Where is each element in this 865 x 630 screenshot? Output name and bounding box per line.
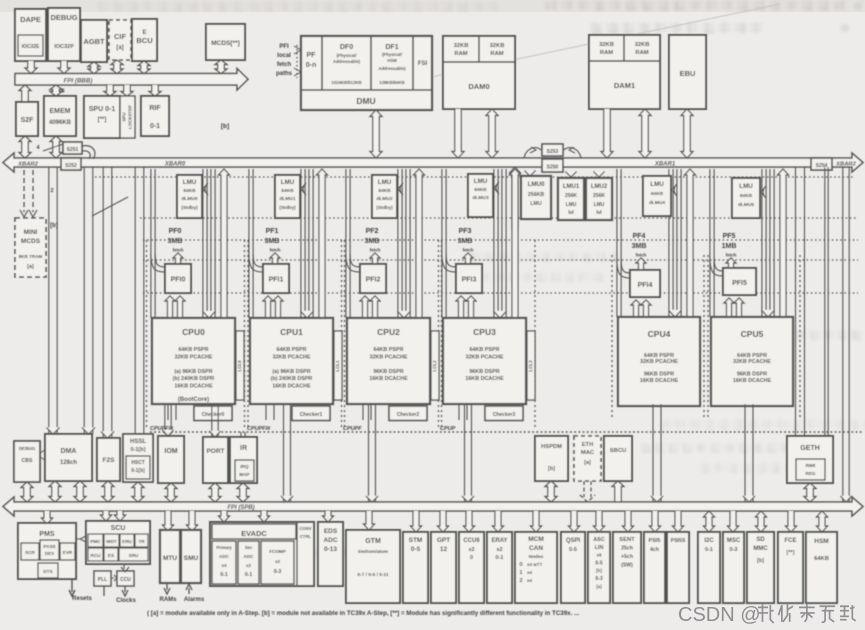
svg-text:local: local	[277, 53, 291, 59]
svg-text:64KB: 64KB	[378, 188, 391, 194]
svg-text:DEV: DEV	[45, 551, 55, 556]
svg-text:BCU: BCU	[136, 36, 152, 45]
svg-text:F2S: F2S	[103, 457, 116, 464]
svg-text:IR: IR	[240, 445, 247, 452]
svg-text:16KB DCACHE: 16KB DCACHE	[640, 378, 679, 384]
svg-text:64KB PSPR: 64KB PSPR	[470, 347, 500, 353]
svg-text:x2: x2	[246, 563, 252, 568]
svg-text:EMEM: EMEM	[50, 108, 71, 115]
svg-text:S252: S252	[65, 163, 77, 169]
svg-text:(Physical/: (Physical/	[382, 52, 403, 57]
svg-text:PF4: PF4	[633, 233, 646, 240]
svg-text:RAM: RAM	[490, 51, 503, 57]
svg-text:(BootCore): (BootCore)	[178, 397, 209, 403]
svg-text:12: 12	[440, 546, 448, 553]
svg-text:Checker2: Checker2	[397, 412, 420, 418]
svg-text:fetch: fetch	[636, 253, 647, 258]
svg-text:[b]: [b]	[50, 223, 58, 229]
svg-text:ERAY: ERAY	[491, 538, 507, 544]
svg-text:32KB PCACHE: 32KB PCACHE	[733, 359, 771, 365]
svg-text:Alarms: Alarms	[184, 597, 205, 603]
svg-text:SPU: SPU	[122, 112, 127, 121]
svg-text:2: 2	[50, 188, 53, 194]
svg-text:16KB DCACHE: 16KB DCACHE	[733, 378, 772, 384]
svg-text:16KB DCACHE: 16KB DCACHE	[465, 376, 504, 382]
svg-text:LMU1: LMU1	[563, 184, 580, 190]
svg-text:1MB: 1MB	[722, 243, 737, 250]
svg-text:0-1: 0-1	[220, 572, 228, 578]
svg-text:CIF: CIF	[114, 32, 127, 41]
svg-text:LMU: LMU	[566, 202, 577, 208]
svg-text:x2: x2	[468, 547, 474, 553]
svg-text:CBS: CBS	[22, 458, 33, 464]
svg-text:LMU: LMU	[281, 179, 295, 186]
svg-text:MINI: MINI	[24, 229, 38, 236]
svg-text:32KB PCACHE: 32KB PCACHE	[369, 354, 407, 360]
svg-text:LMU: LMU	[739, 183, 753, 190]
svg-text:LMU: LMU	[378, 179, 392, 186]
svg-text:3MB: 3MB	[458, 238, 473, 245]
svg-text:Addressable): Addressable)	[378, 66, 406, 71]
svg-text:MCDS[**]: MCDS[**]	[211, 40, 240, 47]
svg-text:EDS: EDS	[324, 528, 338, 535]
svg-text:Clocks: Clocks	[116, 598, 136, 604]
svg-text:FPI (BBB): FPI (BBB)	[64, 78, 93, 85]
svg-text:32KB: 32KB	[599, 42, 614, 48]
svg-text:PFI4: PFI4	[638, 282, 653, 289]
svg-text:SCU: SCU	[111, 525, 126, 532]
svg-text:XBAR2: XBAR2	[835, 162, 856, 168]
svg-text:1024KB/512KB: 1024KB/512KB	[331, 80, 361, 85]
svg-text:IOM: IOM	[164, 448, 177, 455]
svg-text:0-13: 0-13	[324, 546, 337, 553]
svg-text:CCU6: CCU6	[463, 538, 480, 544]
svg-text:dLMU4: dLMU4	[649, 200, 665, 206]
svg-text:64KB: 64KB	[183, 188, 196, 194]
svg-text:(Stdby): (Stdby)	[181, 205, 198, 211]
svg-text:96KB DSPR: 96KB DSPR	[469, 369, 499, 375]
svg-text:MAP: MAP	[239, 472, 249, 477]
svg-text:[a]: [a]	[596, 584, 602, 589]
svg-text:PSI5: PSI5	[649, 538, 661, 544]
svg-text:GETH: GETH	[800, 445, 819, 452]
svg-text:MCDS: MCDS	[21, 238, 41, 245]
svg-text:PORT: PORT	[206, 448, 224, 455]
svg-text:MTU: MTU	[163, 555, 177, 562]
svg-text:HSPDM: HSPDM	[541, 444, 562, 450]
svg-text:x4: x4	[527, 570, 533, 575]
svg-text:ADC: ADC	[323, 537, 337, 544]
svg-text:[**]: [**]	[787, 550, 795, 556]
svg-text:x2: x2	[275, 559, 281, 564]
svg-text:3MB: 3MB	[265, 238, 280, 245]
svg-text:DMU: DMU	[356, 96, 375, 106]
svg-text:dLMU3: dLMU3	[473, 195, 489, 201]
svg-text:tim/tom/atom: tim/tom/atom	[358, 549, 388, 555]
svg-text:64KB PSPR: 64KB PSPR	[179, 347, 209, 353]
svg-text:PF3: PF3	[459, 228, 472, 235]
svg-text:LCL2: LCL2	[432, 360, 437, 372]
svg-text:32KB: 32KB	[635, 42, 650, 48]
svg-text:EVR: EVR	[63, 550, 73, 555]
svg-text:CPU3: CPU3	[473, 327, 496, 337]
svg-text:PSI5S: PSI5S	[671, 538, 686, 544]
svg-text:LMU: LMU	[530, 201, 541, 207]
svg-text:MCM: MCM	[528, 536, 544, 543]
svg-text:fetch: fetch	[173, 248, 184, 253]
svg-text:XBAR1: XBAR1	[654, 162, 676, 168]
svg-text:ES: ES	[108, 553, 114, 558]
svg-text:IOC32P: IOC32P	[54, 44, 74, 50]
svg-text:PF: PF	[307, 52, 317, 59]
svg-text:Addressable): Addressable)	[333, 59, 361, 64]
svg-text:EBU: EBU	[680, 69, 696, 78]
svg-text:0-1[b]: 0-1[b]	[131, 447, 146, 453]
svg-text:[a]: [a]	[584, 460, 591, 466]
svg-text:0-1: 0-1	[245, 572, 253, 578]
svg-text:DTS: DTS	[43, 569, 52, 574]
svg-text:CTRL: CTRL	[300, 534, 312, 539]
svg-text:Nodes: Nodes	[529, 554, 544, 560]
svg-text:5: 5	[61, 89, 64, 95]
svg-text:QSPI: QSPI	[566, 538, 581, 544]
svg-text:96KB DSPR: 96KB DSPR	[737, 372, 767, 378]
svg-text:0-1[b]: 0-1[b]	[131, 468, 145, 474]
svg-text:S253: S253	[547, 149, 559, 155]
svg-text:64KB: 64KB	[474, 187, 487, 193]
svg-text:RAM: RAM	[454, 51, 467, 57]
svg-text:CAN: CAN	[529, 545, 543, 552]
svg-text:DF1: DF1	[385, 44, 398, 51]
svg-text:Primary: Primary	[216, 545, 232, 550]
svg-text:32KB: 32KB	[454, 43, 469, 49]
svg-text:0: 0	[519, 562, 522, 568]
svg-text:DMA: DMA	[61, 448, 77, 455]
svg-text:WDT: WDT	[106, 539, 117, 544]
svg-text:DEBUG: DEBUG	[50, 13, 77, 22]
svg-text:LMU: LMU	[183, 179, 197, 186]
svg-text:RAMs: RAMs	[159, 597, 177, 603]
svg-text:32KB PCACHE: 32KB PCACHE	[640, 359, 678, 365]
svg-text:FSI: FSI	[418, 61, 428, 67]
svg-text:TR: TR	[138, 539, 145, 544]
svg-text:IOC32E: IOC32E	[22, 44, 40, 50]
svg-text:Checker0: Checker0	[202, 412, 225, 418]
svg-text:PFI3: PFI3	[462, 277, 477, 284]
svg-text:0-3: 0-3	[595, 576, 602, 582]
svg-text:256KB: 256KB	[528, 192, 544, 198]
svg-text:ADC: ADC	[244, 554, 255, 559]
svg-text:4096KB: 4096KB	[49, 120, 72, 126]
svg-text:AGBT: AGBT	[83, 37, 105, 46]
svg-text:2: 2	[519, 578, 522, 584]
svg-text:SCR: SCR	[25, 550, 35, 555]
svg-text:XBAR2: XBAR2	[17, 162, 38, 168]
svg-text:DEBUG: DEBUG	[19, 446, 36, 451]
svg-text:S254: S254	[816, 163, 828, 169]
svg-text:FCE: FCE	[785, 538, 797, 544]
svg-text:SRU: SRU	[129, 553, 139, 558]
svg-text:CSDN @: CSDN @	[678, 604, 761, 626]
svg-text:CPU4: CPU4	[648, 329, 671, 339]
svg-text:0-1: 0-1	[705, 547, 713, 553]
svg-text:(Stdby): (Stdby)	[279, 205, 296, 211]
svg-text:32KB: 32KB	[490, 43, 505, 49]
svg-text:S2F: S2F	[21, 117, 35, 124]
svg-text:CPUP: CPUP	[440, 426, 456, 432]
svg-text:LMU2: LMU2	[591, 184, 608, 190]
svg-text:Checker1: Checker1	[300, 412, 323, 418]
svg-text:3MB: 3MB	[632, 243, 647, 250]
svg-text:DAM1: DAM1	[614, 81, 635, 90]
svg-text:128KB/64KB: 128KB/64KB	[379, 80, 405, 85]
svg-text:CPUPF: CPUPF	[343, 426, 362, 432]
svg-text:0-5: 0-5	[411, 546, 421, 553]
svg-text:[b]: [b]	[221, 123, 229, 130]
svg-text:LMU: LMU	[650, 181, 664, 188]
svg-text:dLMU1: dLMU1	[280, 196, 296, 202]
svg-text:REG: REG	[806, 471, 816, 476]
svg-text:[b]: [b]	[548, 466, 555, 472]
svg-text:64KB PSPR: 64KB PSPR	[374, 347, 404, 353]
svg-text:LCL0: LCL0	[237, 360, 242, 372]
svg-text:SPU 0-1: SPU 0-1	[89, 106, 116, 113]
svg-text:96KB DSPR: 96KB DSPR	[373, 369, 403, 375]
svg-text:dLMU0: dLMU0	[182, 196, 198, 202]
svg-text:LIN: LIN	[595, 545, 604, 551]
svg-text:x9: x9	[596, 553, 602, 558]
svg-text:(SW): (SW)	[621, 563, 633, 569]
svg-text:(a) 96KB DSPR: (a) 96KB DSPR	[272, 369, 310, 375]
svg-text:3MB: 3MB	[365, 238, 380, 245]
svg-text:96KB DSPR: 96KB DSPR	[644, 372, 674, 378]
svg-text:x4 wTT: x4 wTT	[527, 562, 543, 567]
svg-text:HSCT: HSCT	[131, 460, 145, 466]
svg-text:EVADC: EVADC	[241, 529, 267, 538]
svg-text:FCOMP: FCOMP	[269, 549, 286, 554]
svg-text:3MB: 3MB	[168, 238, 183, 245]
svg-text:CPU1: CPU1	[280, 327, 303, 337]
svg-text:64KB: 64KB	[651, 191, 664, 197]
svg-text:HSM: HSM	[387, 58, 397, 63]
svg-text:256K: 256K	[565, 193, 577, 199]
svg-text:fetch: fetch	[463, 248, 474, 253]
svg-text:CPUPFI#: CPUPFI#	[247, 426, 271, 432]
svg-text:16KB DCACHE: 16KB DCACHE	[174, 384, 213, 390]
svg-text:0-3: 0-3	[730, 547, 738, 553]
svg-text:PFI2: PFI2	[366, 277, 381, 284]
svg-text:PFI1: PFI1	[269, 277, 284, 284]
svg-text:x4: x4	[527, 578, 533, 583]
svg-text:0-3: 0-3	[274, 569, 282, 575]
svg-text:PMS: PMS	[39, 531, 55, 538]
svg-text:fetch: fetch	[277, 62, 292, 68]
svg-text:PF0: PF0	[169, 228, 182, 235]
svg-text:[a]: [a]	[116, 45, 123, 51]
svg-text:SENT: SENT	[619, 537, 635, 543]
svg-text:fetch: fetch	[270, 248, 281, 253]
svg-text:MSC: MSC	[727, 538, 741, 544]
svg-text:(a) 96KB DSPR: (a) 96KB DSPR	[174, 369, 212, 375]
svg-text:LOCKSTEP: LOCKSTEP	[128, 105, 133, 129]
svg-text:0-5: 0-5	[595, 560, 602, 566]
svg-text:64KB PSPR: 64KB PSPR	[277, 347, 307, 353]
svg-text:PFI: PFI	[279, 44, 289, 50]
svg-text:64KB PSPR: 64KB PSPR	[737, 353, 767, 359]
svg-text:0-1: 0-1	[150, 123, 160, 130]
svg-text:(Stdby): (Stdby)	[376, 205, 393, 211]
svg-text:lvl: lvl	[596, 210, 602, 216]
svg-text:64KB PSPR: 64KB PSPR	[644, 353, 674, 359]
svg-text:RAM: RAM	[600, 50, 613, 56]
svg-text:0: 0	[470, 555, 473, 561]
svg-text:(b) 240KB DSPR: (b) 240KB DSPR	[173, 376, 215, 382]
svg-text:PASS: PASS	[43, 544, 55, 549]
svg-text:PF5: PF5	[723, 233, 736, 240]
svg-text:32KB PCACHE: 32KB PCACHE	[272, 354, 310, 360]
svg-text:4ch: 4ch	[650, 547, 659, 553]
svg-text:DAM0: DAM0	[468, 82, 489, 91]
svg-text:CPU2: CPU2	[377, 327, 400, 337]
svg-text:256K: 256K	[593, 193, 605, 199]
svg-text:IRQ: IRQ	[240, 464, 249, 469]
svg-text:[b]: [b]	[757, 558, 764, 564]
svg-text:fetch: fetch	[370, 248, 381, 253]
svg-text:GTM: GTM	[365, 538, 381, 545]
svg-text:(Physical/: (Physical/	[336, 53, 357, 58]
svg-text:CONV: CONV	[299, 526, 311, 531]
svg-text:LCL3: LCL3	[528, 360, 533, 372]
svg-text:DF0: DF0	[340, 44, 353, 51]
svg-text:I2C: I2C	[704, 538, 714, 544]
svg-text:SBCU: SBCU	[610, 448, 626, 454]
svg-text:XBAR0: XBAR0	[164, 162, 186, 168]
svg-text:ETH: ETH	[582, 442, 594, 448]
svg-text:+5ch: +5ch	[621, 554, 633, 560]
svg-text:MAC: MAC	[581, 450, 595, 456]
svg-text:64KB: 64KB	[814, 556, 829, 562]
svg-text:Checker3: Checker3	[493, 412, 516, 418]
svg-text:PFI0: PFI0	[171, 277, 186, 284]
svg-text:GPT: GPT	[437, 537, 450, 544]
svg-text:64KB: 64KB	[281, 188, 294, 194]
svg-text:( [a] = module available only: ( [a] = module available only in A-Step.…	[147, 610, 579, 617]
svg-text:lvl: lvl	[568, 210, 574, 216]
svg-text:0-n: 0-n	[306, 62, 317, 69]
svg-text:8KB TRAM: 8KB TRAM	[19, 254, 43, 259]
svg-text:RCU: RCU	[91, 553, 102, 558]
svg-text:LMU: LMU	[474, 178, 488, 185]
svg-text:CPU0: CPU0	[182, 327, 205, 337]
svg-text:DAPE: DAPE	[20, 15, 41, 24]
svg-text:S251: S251	[67, 147, 79, 153]
svg-text:SMU: SMU	[184, 555, 199, 562]
svg-text:25ch: 25ch	[621, 546, 633, 552]
svg-text:fetch: fetch	[726, 253, 737, 258]
svg-text:64KB: 64KB	[740, 193, 753, 199]
svg-text:paths: paths	[276, 71, 293, 77]
svg-text:PF2: PF2	[366, 228, 379, 235]
svg-text:RMII: RMII	[806, 463, 816, 468]
svg-text:32KB PCACHE: 32KB PCACHE	[174, 354, 212, 360]
svg-text:x2: x2	[496, 547, 502, 553]
svg-text:STM: STM	[409, 537, 423, 544]
svg-text:32KB PCACHE: 32KB PCACHE	[465, 354, 503, 360]
svg-text:128ch: 128ch	[60, 460, 77, 466]
svg-text:LCL1: LCL1	[335, 360, 340, 372]
svg-text:LMU: LMU	[594, 202, 605, 208]
svg-text:[**]: [**]	[98, 117, 107, 123]
svg-text:FPI (SPB): FPI (SPB)	[227, 505, 254, 511]
svg-text:S250: S250	[547, 165, 559, 171]
svg-text:16KB DCACHE: 16KB DCACHE	[272, 384, 311, 390]
svg-text:dLMU5: dLMU5	[738, 202, 754, 208]
svg-text:x4: x4	[221, 563, 227, 568]
svg-text:1: 1	[519, 570, 522, 576]
svg-text:ADC: ADC	[219, 554, 230, 559]
svg-text:16KB DCACHE: 16KB DCACHE	[369, 376, 408, 382]
svg-text:0-7 / 0-5 / 0-11: 0-7 / 0-5 / 0-11	[357, 572, 389, 578]
svg-text:PMC: PMC	[90, 539, 101, 544]
svg-text:[a]: [a]	[27, 264, 34, 270]
svg-text:CPU5: CPU5	[741, 329, 764, 339]
svg-text:CCU: CCU	[120, 577, 131, 583]
svg-text:RIF: RIF	[149, 105, 161, 112]
svg-text:HSM: HSM	[814, 538, 828, 545]
svg-text:0-1: 0-1	[496, 555, 504, 561]
svg-text:[b]: [b]	[596, 568, 602, 573]
svg-text:SD: SD	[756, 537, 765, 543]
svg-text:ERU: ERU	[122, 539, 132, 544]
svg-text:HSSL: HSSL	[130, 439, 146, 445]
svg-text:PFI5: PFI5	[732, 280, 747, 287]
svg-text:RAM: RAM	[635, 50, 648, 56]
svg-text:ASC: ASC	[593, 537, 605, 543]
svg-text:(b) 240KB DSPR: (b) 240KB DSPR	[271, 376, 313, 382]
svg-text:LMU0: LMU0	[528, 181, 545, 188]
svg-text:PLL: PLL	[98, 577, 107, 583]
svg-text:Sec: Sec	[245, 545, 253, 550]
svg-text:PF1: PF1	[266, 228, 279, 235]
svg-text:dLMU2: dLMU2	[377, 196, 393, 202]
svg-text:MMC: MMC	[753, 546, 768, 552]
svg-text:Resets: Resets	[72, 596, 92, 602]
svg-text:0-5: 0-5	[569, 547, 577, 553]
